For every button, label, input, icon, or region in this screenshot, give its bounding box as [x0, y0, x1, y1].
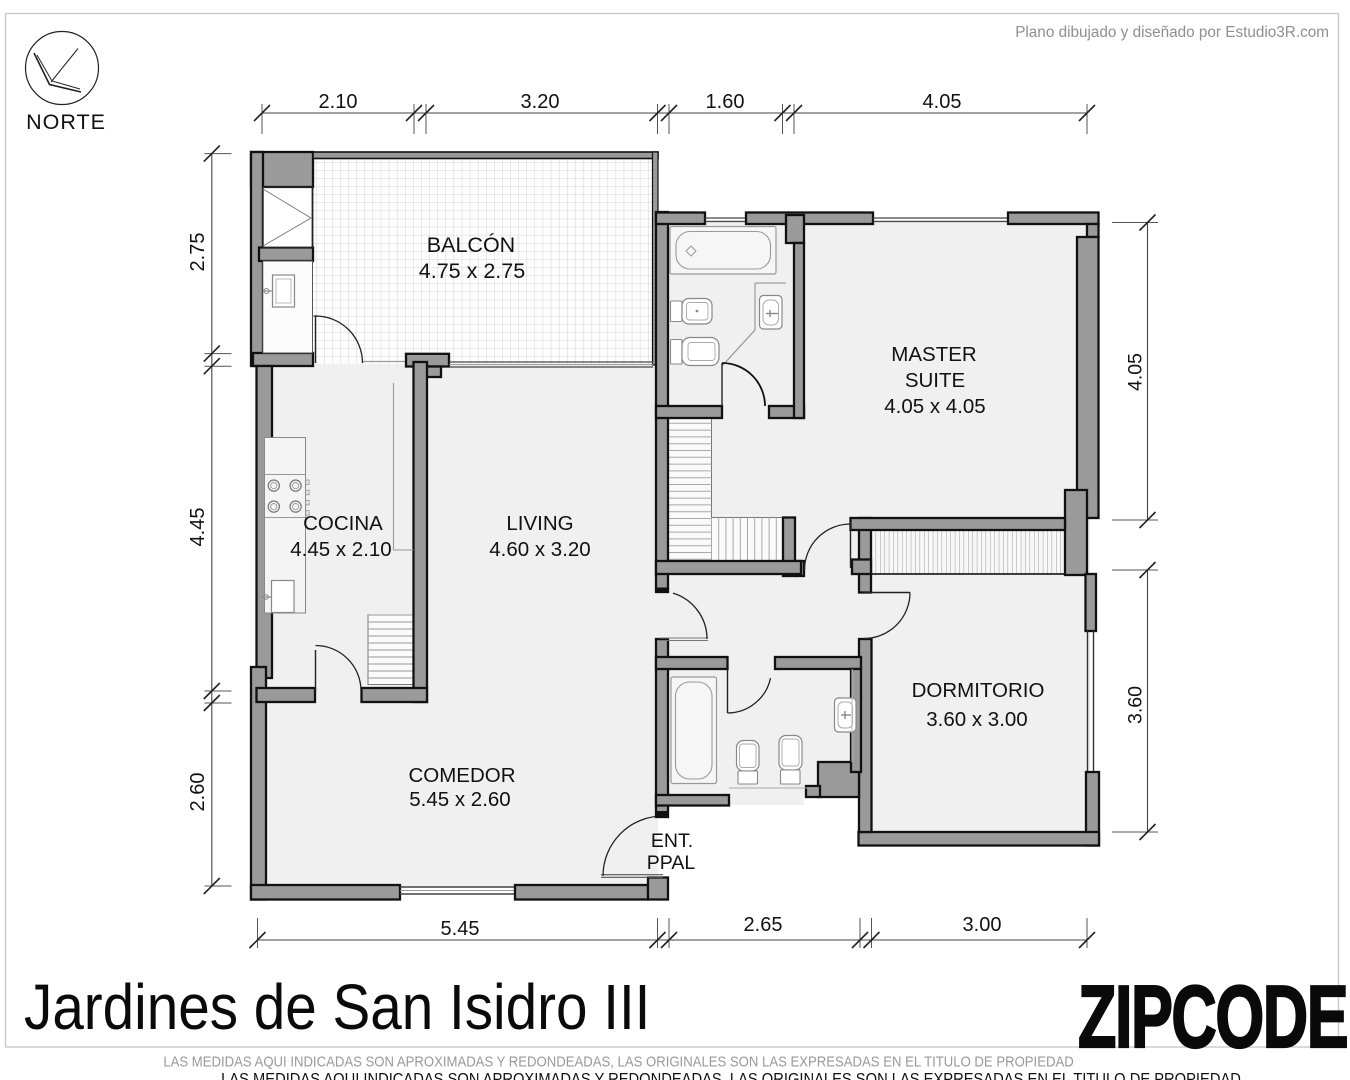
svg-text:ENT.: ENT.	[651, 830, 693, 852]
svg-text:4.75 x 2.75: 4.75 x 2.75	[419, 259, 525, 283]
svg-text:4.60 x 3.20: 4.60 x 3.20	[489, 538, 590, 561]
svg-text:2.10: 2.10	[319, 91, 358, 113]
svg-text:4.45: 4.45	[187, 508, 209, 547]
svg-text:BALCÓN: BALCÓN	[427, 232, 515, 257]
svg-text:LIVING: LIVING	[506, 512, 573, 535]
svg-text:4.05 x 4.05: 4.05 x 4.05	[884, 395, 985, 418]
svg-text:Plano dibujado y diseñado por: Plano dibujado y diseñado por Estudio3R.…	[1015, 24, 1329, 41]
svg-text:SUITE: SUITE	[905, 369, 965, 392]
svg-text:4.45 x 2.10: 4.45 x 2.10	[290, 538, 391, 561]
svg-text:LAS MEDIDAS AQUI INDICADAS SON: LAS MEDIDAS AQUI INDICADAS SON APROXIMAD…	[163, 1053, 1073, 1070]
svg-text:MASTER: MASTER	[891, 343, 976, 366]
svg-text:ZIPCODE: ZIPCODE	[1078, 969, 1347, 1067]
svg-text:2.60: 2.60	[187, 773, 209, 812]
svg-text:5.45 x 2.60: 5.45 x 2.60	[409, 788, 510, 811]
svg-text:COCINA: COCINA	[303, 512, 383, 535]
svg-text:3.00: 3.00	[963, 914, 1002, 936]
svg-text:1.60: 1.60	[706, 91, 745, 113]
svg-text:DORMITORIO: DORMITORIO	[912, 679, 1045, 702]
svg-text:LAS MEDIDAS AQUI INDICADAS SON: LAS MEDIDAS AQUI INDICADAS SON APROXIMAD…	[221, 1071, 1241, 1080]
svg-text:4.05: 4.05	[923, 91, 962, 113]
svg-text:2.75: 2.75	[187, 233, 209, 272]
svg-text:3.20: 3.20	[521, 91, 560, 113]
svg-text:Jardines de San Isidro III: Jardines de San Isidro III	[24, 971, 650, 1043]
svg-text:2.65: 2.65	[744, 914, 783, 936]
svg-text:4.05: 4.05	[1125, 353, 1147, 391]
svg-text:COMEDOR: COMEDOR	[408, 764, 515, 787]
svg-text:PPAL: PPAL	[647, 852, 696, 874]
svg-text:NORTE: NORTE	[26, 110, 106, 134]
svg-text:3.60 x 3.00: 3.60 x 3.00	[926, 708, 1027, 731]
svg-text:5.45: 5.45	[441, 918, 480, 940]
svg-text:3.60: 3.60	[1125, 686, 1147, 724]
